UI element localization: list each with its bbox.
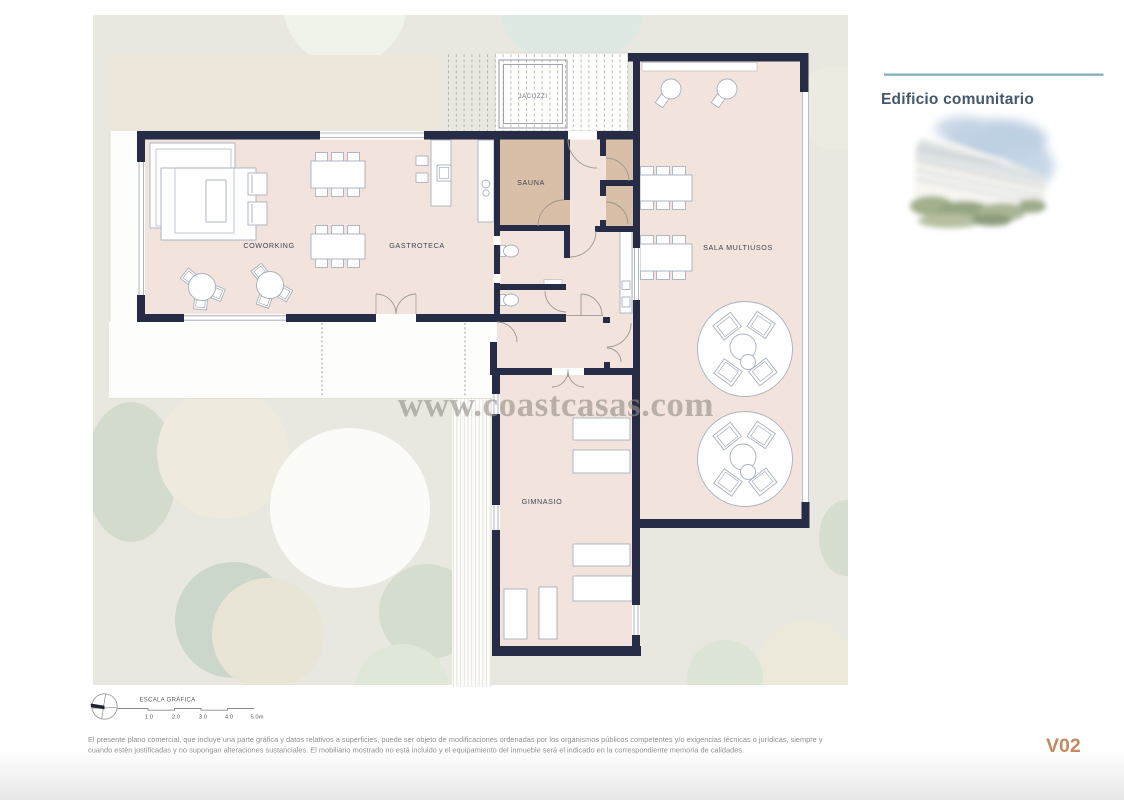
svg-text:Edificio comunitario: Edificio comunitario bbox=[881, 91, 1034, 108]
svg-text:GIMNASIO: GIMNASIO bbox=[522, 497, 563, 506]
svg-text:SALA MULTIUSOS: SALA MULTIUSOS bbox=[703, 243, 773, 252]
svg-text:SAUNA: SAUNA bbox=[517, 178, 545, 187]
svg-text:3.0: 3.0 bbox=[199, 715, 208, 721]
svg-text:4.0: 4.0 bbox=[225, 715, 234, 721]
svg-text:5.0m: 5.0m bbox=[250, 715, 263, 721]
svg-text:2.0: 2.0 bbox=[172, 715, 181, 721]
svg-text:www.coastcasas.com: www.coastcasas.com bbox=[398, 385, 714, 424]
svg-text:COWORKING: COWORKING bbox=[243, 241, 294, 250]
svg-text:ESCALA GRÁFICA: ESCALA GRÁFICA bbox=[140, 697, 196, 704]
svg-text:GASTROTECA: GASTROTECA bbox=[389, 241, 445, 250]
svg-text:JACUZZI: JACUZZI bbox=[519, 93, 548, 100]
svg-text:El presente plano comercial, q: El presente plano comercial, que incluye… bbox=[88, 735, 823, 744]
svg-text:1.0: 1.0 bbox=[145, 715, 154, 721]
